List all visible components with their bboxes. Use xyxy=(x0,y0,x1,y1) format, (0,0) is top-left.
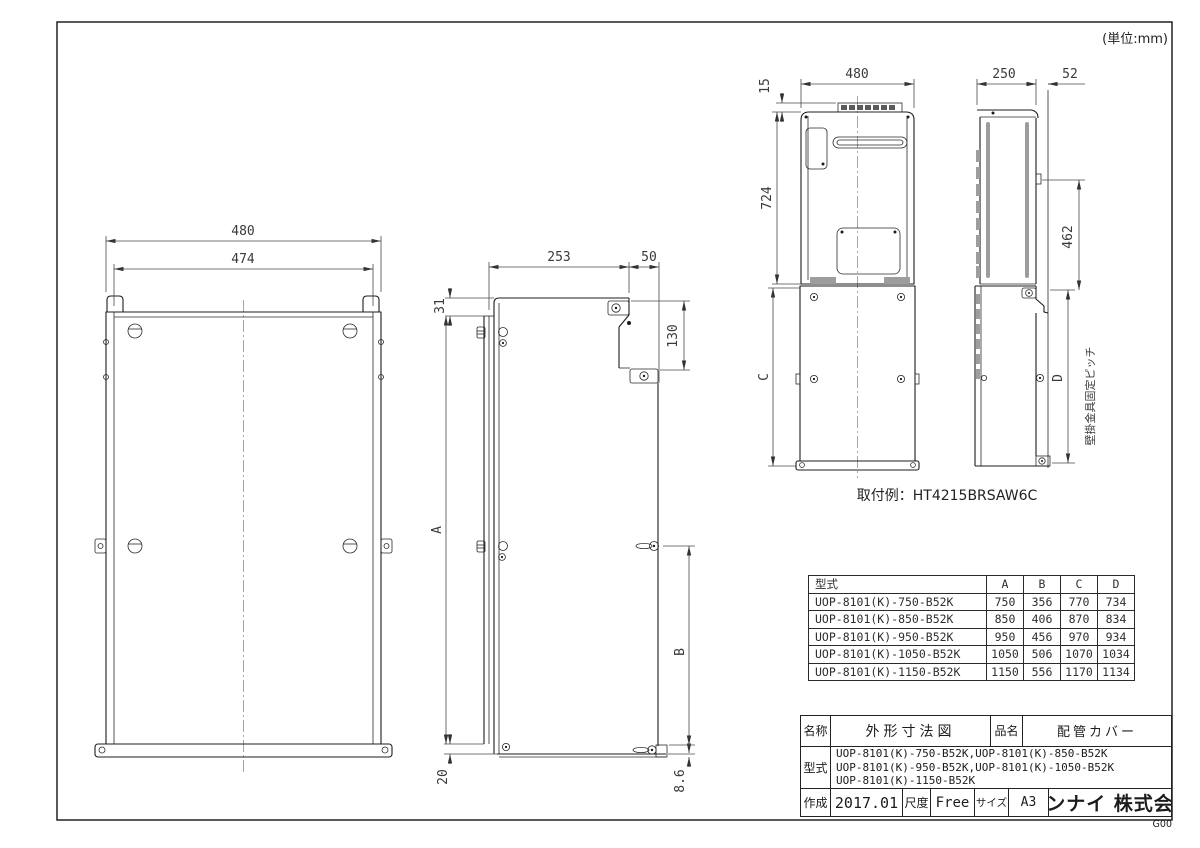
unit-note: (単位:mm) xyxy=(1020,28,1168,47)
installed-front-dims: 15 480 724 C xyxy=(757,67,914,466)
d-cell: 834 xyxy=(1098,611,1135,629)
table-row: UOP-8101(K)-950-B52K 950 456 970 934 xyxy=(809,628,1135,646)
c-cell: 770 xyxy=(1061,593,1098,611)
dim-474: 474 xyxy=(231,252,255,267)
model-cell: UOP-8101(K)-850-B52K xyxy=(809,611,987,629)
product-label: 品名 xyxy=(991,716,1023,746)
cover-side-view xyxy=(477,298,667,757)
model-cell: UOP-8101(K)-1050-B52K xyxy=(809,646,987,664)
cover-side-dims: 253 50 31 130 A 20 B xyxy=(430,250,695,793)
dim-724: 724 xyxy=(760,186,775,210)
table-row: UOP-8101(K)-850-B52K 850 406 870 834 xyxy=(809,611,1135,629)
sheet-code: G00 xyxy=(1090,819,1172,830)
page-frame xyxy=(57,22,1172,820)
install-example-caption: 取付例：HT4215BRSAW6C xyxy=(857,488,1038,504)
c-cell: 1070 xyxy=(1061,646,1098,664)
created-date: 2017.01 xyxy=(831,789,903,816)
d-cell: 734 xyxy=(1098,593,1135,611)
dim-130: 130 xyxy=(666,324,681,347)
dim-15: 15 xyxy=(758,78,773,94)
c-cell: 1170 xyxy=(1061,663,1098,681)
b-cell: 456 xyxy=(1024,628,1061,646)
dim-50: 50 xyxy=(641,250,657,265)
installed-side-dims: 250 52 462 D 壁掛金具固定ピッチ xyxy=(977,67,1097,463)
table-row: UOP-8101(K)-750-B52K 750 356 770 734 xyxy=(809,593,1135,611)
dim-20: 20 xyxy=(436,769,451,785)
size-value: A3 xyxy=(1009,789,1049,816)
d-cell: 934 xyxy=(1098,628,1135,646)
d-cell: 1134 xyxy=(1098,663,1135,681)
spec-table-header-row: 型式 A B C D xyxy=(809,576,1135,594)
model-cell: UOP-8101(K)-1150-B52K xyxy=(809,663,987,681)
cover-side-louvers xyxy=(976,294,980,379)
name-label: 名称 xyxy=(801,716,831,746)
d-cell: 1034 xyxy=(1098,646,1135,664)
a-cell: 1150 xyxy=(987,663,1024,681)
model-list: UOP-8101(K)-750-B52K,UOP-8101(K)-850-B52… xyxy=(831,747,1171,788)
model-cell: UOP-8101(K)-750-B52K xyxy=(809,593,987,611)
drawing-sheet: 480 474 xyxy=(0,0,1200,848)
col-header-a: A xyxy=(987,576,1024,594)
scale-label: 尺度 xyxy=(903,789,931,816)
company-name: リンナイ 株式会社 xyxy=(1049,789,1171,816)
spec-table: 型式 A B C D UOP-8101(K)-750-B52K 750 356 … xyxy=(808,575,1135,681)
slot-screw xyxy=(128,324,357,553)
model-cell: UOP-8101(K)-950-B52K xyxy=(809,628,987,646)
table-row: UOP-8101(K)-1050-B52K 1050 506 1070 1034 xyxy=(809,646,1135,664)
dim-31: 31 xyxy=(433,298,448,314)
installed-front-view xyxy=(796,96,919,478)
dim-A: A xyxy=(430,526,445,534)
louver-cap xyxy=(841,105,895,110)
b-cell: 506 xyxy=(1024,646,1061,664)
a-cell: 850 xyxy=(987,611,1024,629)
col-header-c: C xyxy=(1061,576,1098,594)
col-header-model: 型式 xyxy=(809,576,987,594)
front-louvers xyxy=(976,150,980,278)
dim-52: 52 xyxy=(1062,67,1078,82)
title-block: 名称 外形寸法図 品名 配管カバー 型式 UOP-8101(K)-750-B52… xyxy=(800,715,1172,817)
installed-side-view xyxy=(975,90,1050,468)
size-label: サイズ xyxy=(975,789,1009,816)
dim-D: D xyxy=(1051,374,1066,382)
cover-front-dims: 480 474 xyxy=(106,224,381,306)
dim-C: C xyxy=(757,373,772,381)
created-label: 作成 xyxy=(801,789,831,816)
c-cell: 870 xyxy=(1061,611,1098,629)
dim-B: B xyxy=(673,648,688,656)
b-cell: 406 xyxy=(1024,611,1061,629)
model-line: UOP-8101(K)-1150-B52K xyxy=(836,774,975,788)
dim-253: 253 xyxy=(547,250,570,265)
clip-symbols xyxy=(477,327,659,560)
drawing-name: 外形寸法図 xyxy=(831,716,991,746)
model-line: UOP-8101(K)-950-B52K,UOP-8101(K)-1050-B5… xyxy=(836,761,1114,775)
col-header-b: B xyxy=(1024,576,1061,594)
b-cell: 356 xyxy=(1024,593,1061,611)
dim-8-6: 8.6 xyxy=(673,769,688,792)
model-line: UOP-8101(K)-750-B52K,UOP-8101(K)-850-B52… xyxy=(836,747,1108,761)
col-header-d: D xyxy=(1098,576,1135,594)
table-row: UOP-8101(K)-1150-B52K 1150 556 1170 1134 xyxy=(809,663,1135,681)
dim-462: 462 xyxy=(1061,225,1076,248)
dim-480-front: 480 xyxy=(231,224,254,239)
scale-value: Free xyxy=(931,789,975,816)
dim-250: 250 xyxy=(992,67,1015,82)
cover-front-view xyxy=(95,296,392,772)
model-label: 型式 xyxy=(801,747,831,788)
product-name: 配管カバー xyxy=(1023,716,1171,746)
a-cell: 950 xyxy=(987,628,1024,646)
a-cell: 1050 xyxy=(987,646,1024,664)
a-cell: 750 xyxy=(987,593,1024,611)
wall-bracket-pitch-note: 壁掛金具固定ピッチ xyxy=(1083,347,1097,446)
c-cell: 970 xyxy=(1061,628,1098,646)
b-cell: 556 xyxy=(1024,663,1061,681)
dim-480-installed: 480 xyxy=(845,67,868,82)
